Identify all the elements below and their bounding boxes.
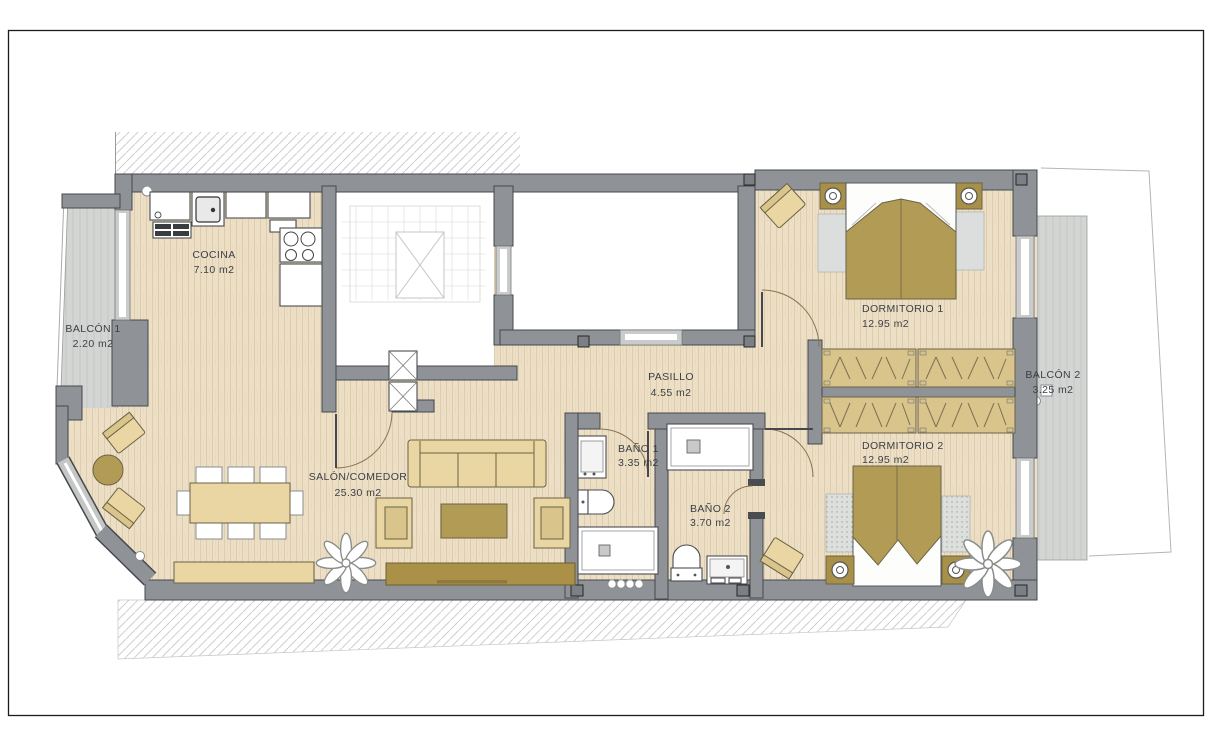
room-label-bano1: BAÑO 1 <box>618 442 659 455</box>
room-label-salon: SALÓN/COMEDOR <box>309 470 408 483</box>
room-label-balcon2: BALCÓN 2 <box>1025 368 1080 381</box>
dining-chair-icon <box>177 491 190 515</box>
floor-plan-canvas: COCINA 7.10 m2 BALCÓN 1 2.20 m2 SALÓN/CO… <box>0 0 1212 749</box>
wall-landing-right <box>738 186 755 332</box>
dining-chair-icon <box>196 523 222 539</box>
tv-cabinet-icon <box>386 563 575 585</box>
room-area-bano2: 3.70 m2 <box>690 517 731 529</box>
rug <box>818 214 846 272</box>
wardrobe-icon <box>822 397 916 433</box>
lamp-icon <box>825 188 841 204</box>
wall-stub-below-stairwell <box>336 366 517 380</box>
column <box>744 174 755 185</box>
dining-chair-icon <box>196 467 222 483</box>
nightstand-icon <box>820 183 846 209</box>
floor-plan-drawing: COCINA 7.10 m2 BALCÓN 1 2.20 m2 SALÓN/CO… <box>0 0 1212 749</box>
column <box>1016 174 1027 185</box>
room-label-dormitorio2: DORMITORIO 2 <box>862 440 944 452</box>
kitchen-drawers-icon <box>153 222 191 238</box>
hatch-zone-top <box>115 132 520 174</box>
wall-balcony1-top <box>62 194 120 208</box>
room-label-bano2: BAÑO 2 <box>690 502 731 515</box>
room-area-dormitorio2: 12.95 m2 <box>862 454 909 466</box>
bed-icon <box>853 466 941 586</box>
lamp-icon <box>832 562 848 578</box>
dining-chair-icon <box>260 523 286 539</box>
dining-chair-icon <box>228 467 254 483</box>
column <box>1015 585 1027 596</box>
rug <box>826 494 854 552</box>
armchair-icon <box>376 498 412 548</box>
nightstand-icon <box>956 183 982 209</box>
plant-icon <box>955 531 1021 597</box>
wardrobe-icon <box>822 349 916 387</box>
armchair-icon <box>534 498 570 548</box>
wardrobe-icon <box>918 349 1015 387</box>
stove-icon <box>280 228 322 262</box>
column <box>578 336 589 347</box>
room-label-dormitorio1: DORMITORIO 1 <box>862 303 944 315</box>
plant-icon <box>316 533 375 592</box>
wall-kitchen-stairwell <box>322 186 336 412</box>
sink-icon <box>707 556 747 584</box>
column <box>744 336 755 347</box>
wardrobe-icon <box>918 397 1015 433</box>
round-side-table-icon <box>93 455 123 485</box>
room-area-cocina: 7.10 m2 <box>194 264 235 276</box>
fridge-icon <box>150 192 190 220</box>
dining-table-icon <box>190 483 290 523</box>
room-label-cocina: COCINA <box>192 249 235 261</box>
room-area-dormitorio1: 12.95 m2 <box>862 318 909 330</box>
bed-icon <box>846 183 956 299</box>
sofa-icon <box>408 440 546 487</box>
kitchen-counter <box>268 192 310 218</box>
room-area-balcon2: 3.25 m2 <box>1033 384 1074 396</box>
dining-chair-icon <box>228 523 254 539</box>
room-area-salon: 25.30 m2 <box>335 487 382 499</box>
room-area-balcon1: 2.20 m2 <box>73 338 114 350</box>
wall-knob-icon <box>136 552 145 561</box>
room-area-pasillo: 4.55 m2 <box>651 387 692 399</box>
sink-icon <box>578 436 606 478</box>
hatch-zone-bottom <box>118 600 966 659</box>
kitchen-counter <box>226 192 266 218</box>
kitchen-sink-icon <box>192 192 224 226</box>
kitchen-cabinet <box>280 264 322 306</box>
elevator-shaft-icon <box>396 232 444 298</box>
door-jamb <box>748 512 765 519</box>
shower-icon <box>667 424 753 470</box>
wall-wardrobe-spine <box>822 387 1015 397</box>
dining-chair-icon <box>290 491 303 515</box>
landing-zone <box>500 186 755 332</box>
wall-salon-left <box>56 406 68 464</box>
room-area-bano1: 3.35 m2 <box>618 457 659 469</box>
dining-chair-icon <box>260 467 286 483</box>
rug <box>956 212 984 270</box>
toilet-icon <box>578 490 614 514</box>
bathtub-icon <box>578 527 658 574</box>
balcony-1-floor <box>60 196 118 416</box>
lamp-icon <box>961 188 977 204</box>
door-jamb <box>748 479 765 486</box>
sideboard-icon <box>174 562 314 583</box>
wall-bath2-right-b <box>750 514 763 598</box>
nightstand-icon <box>826 556 854 584</box>
column <box>571 585 583 596</box>
coffee-table-icon <box>441 504 507 538</box>
room-label-balcon1: BALCÓN 1 <box>65 322 120 335</box>
wall-top <box>115 174 755 192</box>
room-label-pasillo: PASILLO <box>648 371 694 383</box>
column <box>737 585 749 596</box>
toilet-icon <box>671 545 702 581</box>
wall-stairwell-right-a <box>494 186 513 246</box>
